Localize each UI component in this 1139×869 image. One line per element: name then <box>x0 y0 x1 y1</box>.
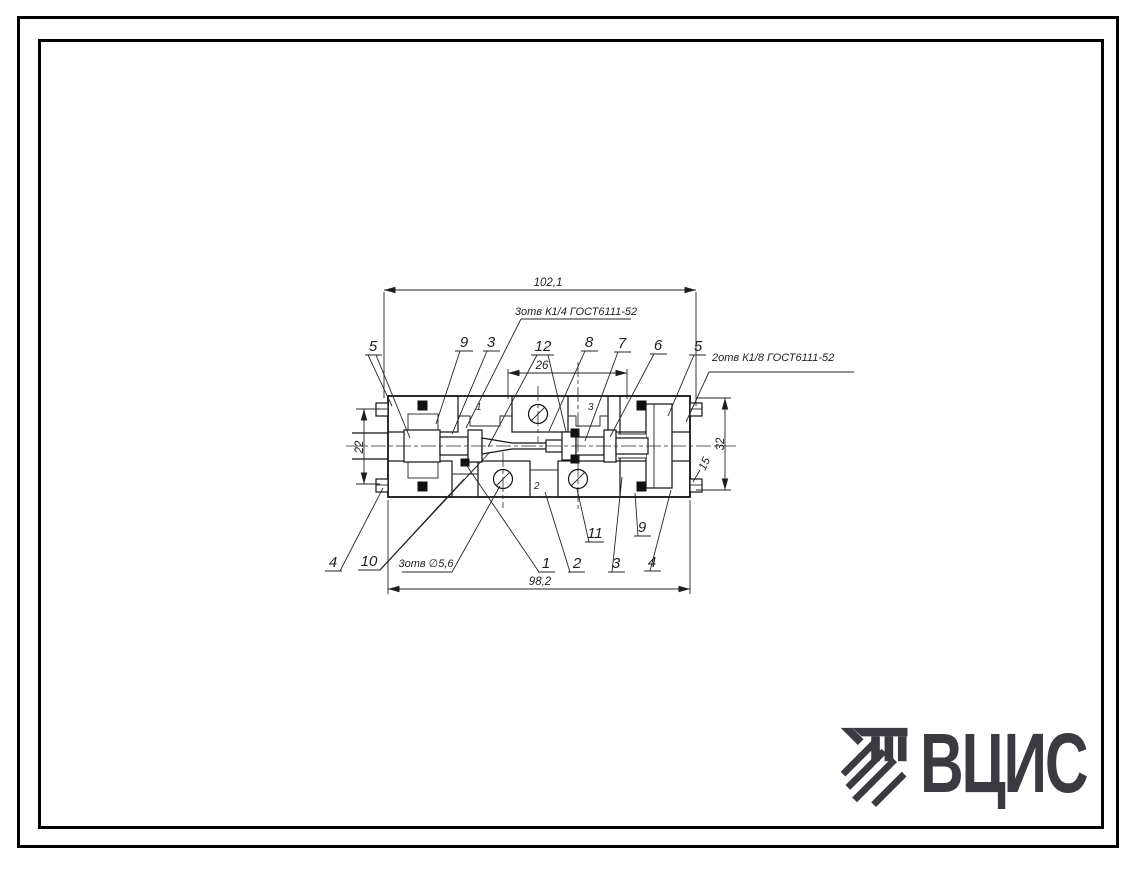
dim-plug-offset-value: 15 <box>697 455 714 472</box>
svg-text:5: 5 <box>369 338 378 355</box>
svg-text:1: 1 <box>542 555 550 572</box>
vcis-logo-text: ВЦИС <box>920 724 1086 802</box>
dim-height-right-value: 32 <box>715 437 727 450</box>
dim-center-span-value: 26 <box>535 360 549 372</box>
valve-body: 1 2 3 <box>346 362 737 510</box>
port-mark-2: 2 <box>533 481 540 492</box>
svg-text:12: 12 <box>535 338 552 355</box>
svg-text:6: 6 <box>654 337 663 354</box>
svg-text:8: 8 <box>585 334 594 351</box>
dimension-height-left: 22 <box>354 409 380 484</box>
drawing-sheet: 1 2 3 102,1 26 98,2 22 <box>0 0 1139 869</box>
port-mark-3: 3 <box>588 402 594 413</box>
svg-text:11: 11 <box>587 525 603 542</box>
dim-overall-bottom-value: 98,2 <box>529 576 552 588</box>
annotation-ports-right: 2отв К1/8 ГОСТ6111-52 <box>686 352 854 422</box>
vcis-logo-emblem <box>838 724 914 808</box>
callout-9-bottom-right: 9 <box>634 493 651 536</box>
dimension-overall-bottom: 98,2 <box>388 500 690 594</box>
svg-text:4: 4 <box>329 554 337 571</box>
callout-4-bottom-right: 4 <box>644 490 671 571</box>
svg-text:10: 10 <box>361 553 378 570</box>
svg-text:9: 9 <box>638 519 647 536</box>
svg-text:9: 9 <box>460 334 469 351</box>
dimension-plug-offset: 15 <box>693 455 713 482</box>
annotation-holes-bottom-text: 3отв ∅5,6 <box>398 558 454 570</box>
annotation-ports-top-text: 3отв К1/4 ГОСТ6111-52 <box>515 306 637 318</box>
callout-2-bottom: 2 <box>545 492 585 572</box>
annotation-holes-bottom: 3отв ∅5,6 <box>398 486 500 572</box>
svg-text:2: 2 <box>572 555 582 572</box>
dimension-center-span: 26 <box>508 360 627 399</box>
dim-height-left-value: 22 <box>354 440 366 454</box>
svg-text:5: 5 <box>694 338 703 355</box>
svg-text:3: 3 <box>487 334 496 351</box>
dim-overall-top-value: 102,1 <box>534 277 563 289</box>
vcis-logo: ВЦИС <box>838 724 1139 808</box>
svg-text:7: 7 <box>618 335 627 352</box>
annotation-ports-right-text: 2отв К1/8 ГОСТ6111-52 <box>711 352 834 364</box>
